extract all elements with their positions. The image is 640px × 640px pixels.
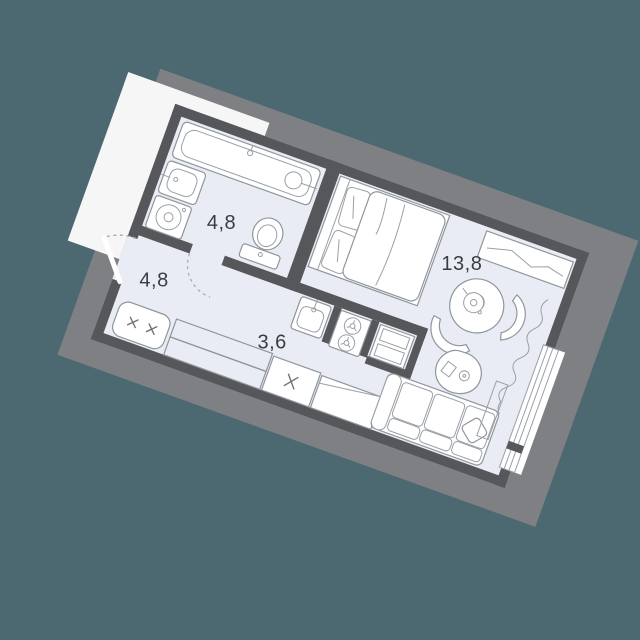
room-label-kitchen: 3,6 [257, 331, 286, 354]
round-table [442, 271, 511, 340]
rotated-floorplan: 4,8 4,8 3,6 13,8 [91, 104, 590, 488]
room-label-hallway: 4,8 [139, 270, 168, 293]
entrance-door-swing [92, 228, 136, 281]
bathroom-door-swing [178, 254, 222, 298]
toilet [238, 212, 292, 270]
room-label-bathroom: 4,8 [207, 212, 236, 235]
plan-drawing [0, 14, 640, 586]
floorplan-scene: 4,8 4,8 3,6 13,8 [0, 0, 640, 640]
window [499, 345, 558, 473]
room-label-living-room: 13,8 [441, 253, 482, 276]
